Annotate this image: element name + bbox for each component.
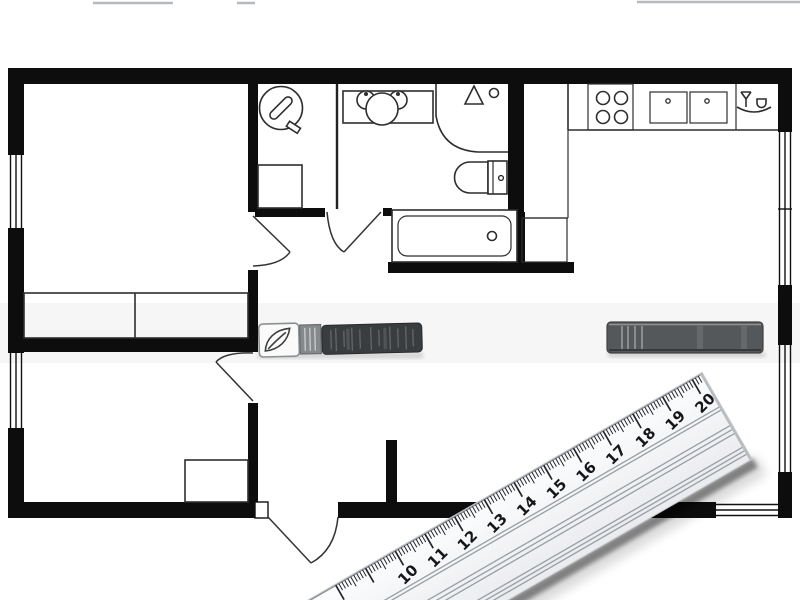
window-right-upper (778, 132, 792, 285)
wall-right-middle (778, 285, 792, 345)
wall-bottom-left (8, 502, 255, 518)
wall-right-upper (778, 68, 792, 132)
door-bedroom1 (253, 216, 290, 266)
closet-bedroom2 (185, 460, 248, 502)
wall-left-middle (8, 228, 24, 353)
wall-kitchen-west (508, 84, 524, 212)
wall-living-stub (386, 440, 397, 502)
vanity-double-sink-icon (343, 91, 433, 125)
wall-bathroom-south (255, 208, 325, 217)
door-bathroom (327, 212, 381, 252)
storage-cabinet (258, 165, 302, 208)
wall-bedroom-divider (8, 338, 258, 352)
screenshot-stage: 1011121314151617181920 (0, 0, 800, 600)
wall-top (8, 68, 792, 84)
toilet-icon (455, 161, 508, 194)
marker-body-gray (607, 322, 763, 353)
kitchen-double-sink-icon (650, 92, 727, 123)
door-entry (268, 517, 338, 563)
wall-bath-kitchen-south (388, 262, 574, 273)
dish-rack-icon (736, 84, 771, 130)
top-artifact-lines (93, 2, 800, 3)
ruler: 1011121314151617181920 (299, 370, 767, 600)
bathtub-icon (392, 210, 517, 262)
stove-icon (588, 84, 633, 130)
window-right-lower (780, 345, 791, 472)
bathroom-fixtures (258, 84, 517, 262)
window-bottom (716, 505, 778, 516)
wall-bedroom2-right (248, 403, 258, 502)
marker-pen-right (607, 322, 763, 353)
wall-bedroom1-right (248, 84, 258, 212)
window-left-lower (11, 353, 22, 428)
washing-machine-icon (260, 87, 303, 134)
marker-cap-leaf-badge (259, 323, 300, 357)
bathroom-door-jamb (383, 208, 392, 216)
door-kitchen-leaf (522, 218, 567, 262)
window-left-upper (11, 155, 22, 228)
entry-door-jamb (255, 502, 268, 518)
marker-pen-left (259, 320, 423, 357)
kitchen-fixtures (524, 84, 778, 218)
wall-right-lower (778, 472, 792, 518)
wall-left-upper (8, 68, 24, 155)
wall-hall-stub-upper (248, 270, 258, 338)
corner-shower-icon (436, 84, 508, 152)
floor-plan-image: 1011121314151617181920 (0, 0, 800, 600)
